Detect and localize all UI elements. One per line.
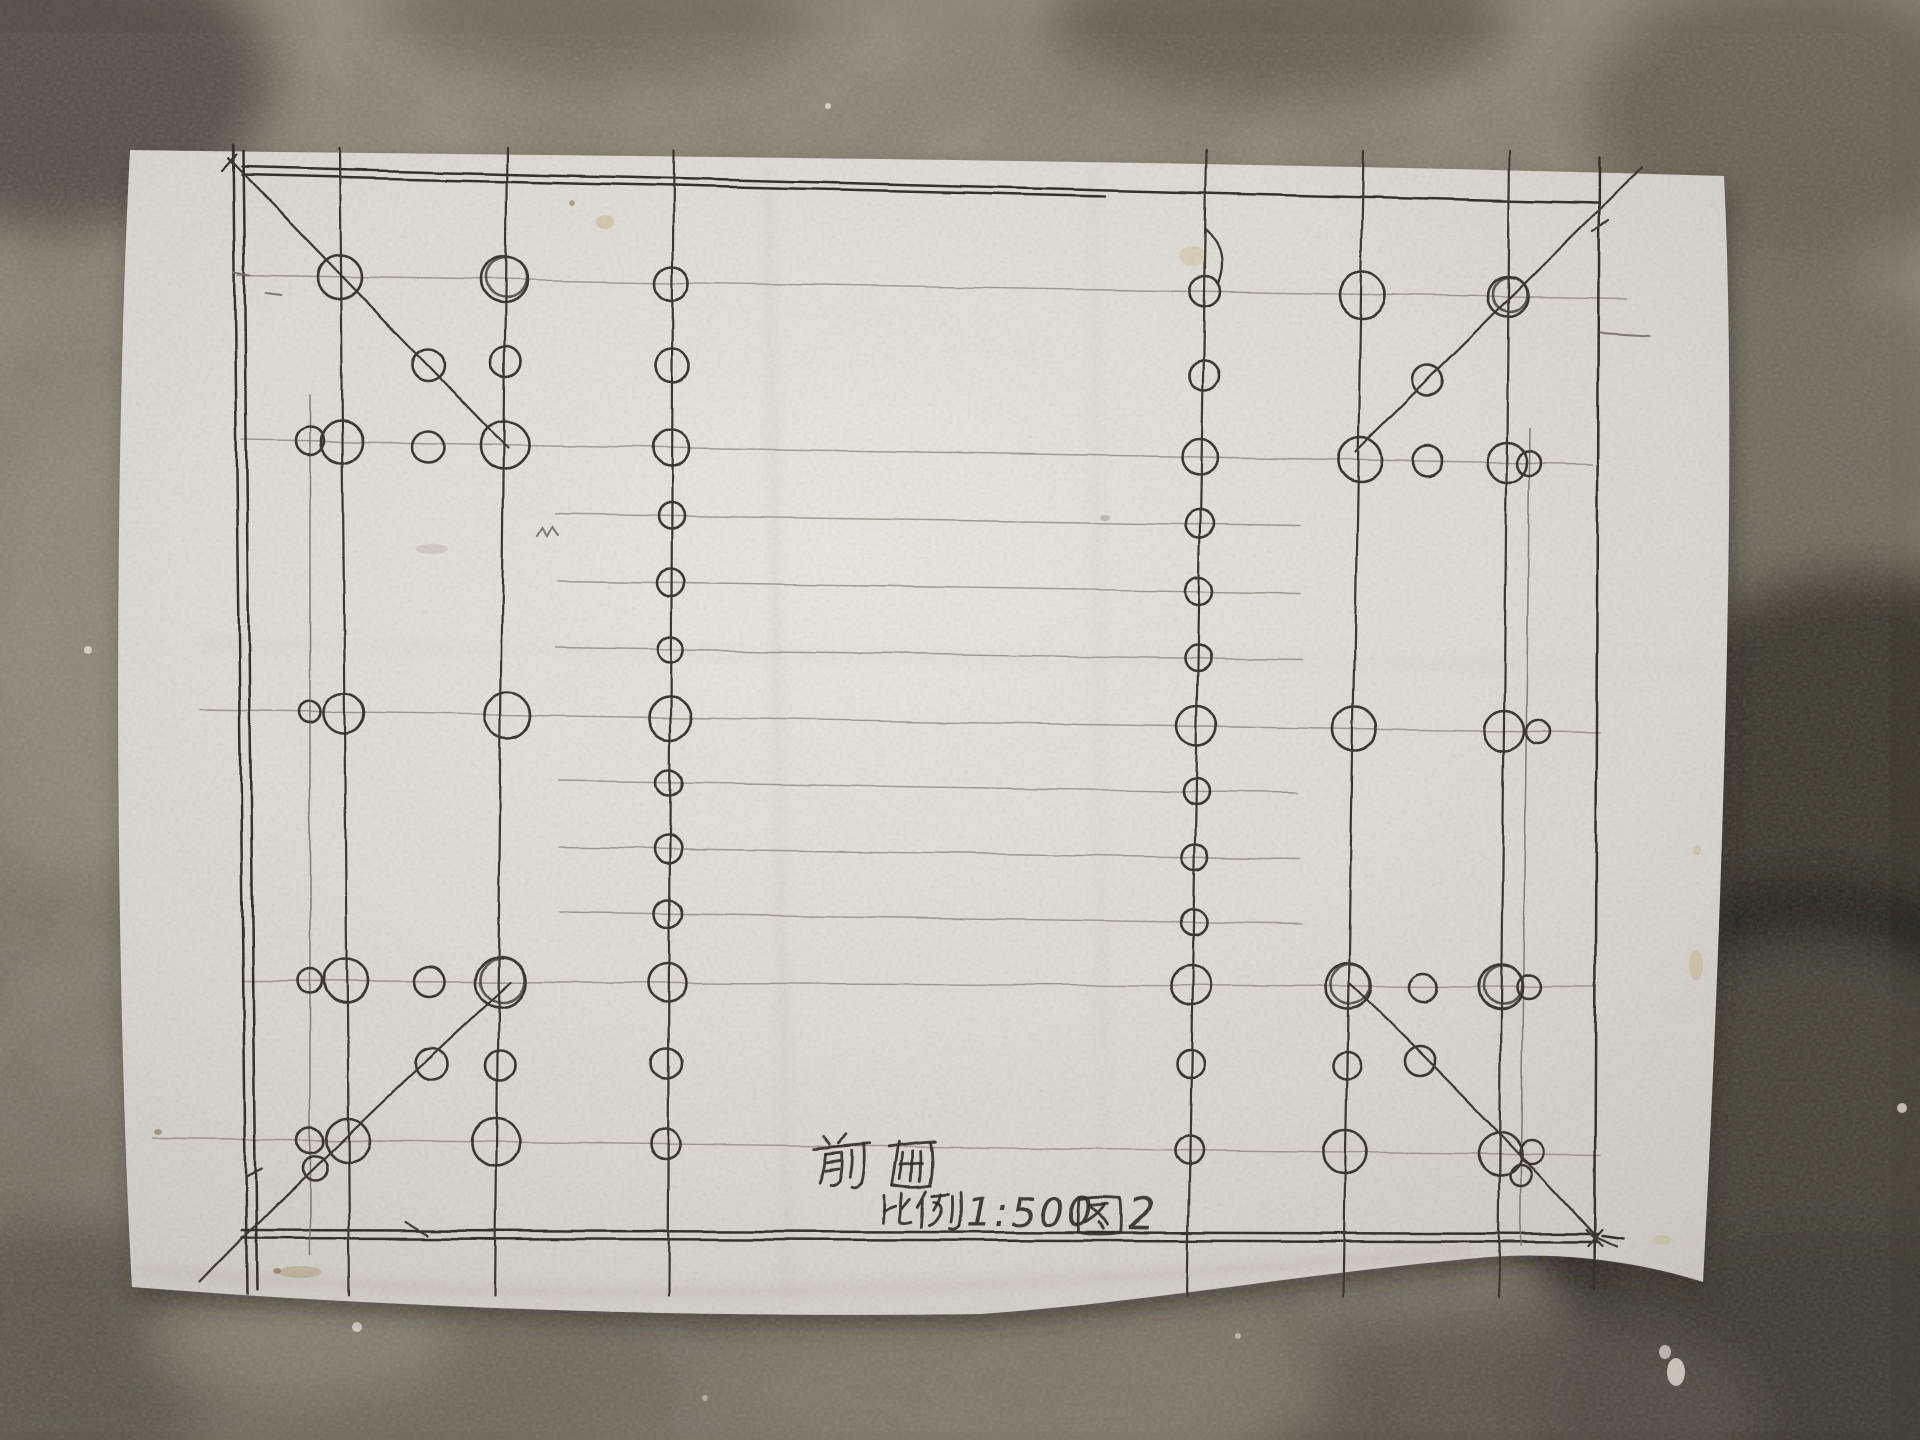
photo-grain (0, 0, 1920, 1440)
scene-svg: 1:500 2 (0, 0, 1920, 1440)
photo-of-drawing: 1:500 2 (0, 0, 1920, 1440)
